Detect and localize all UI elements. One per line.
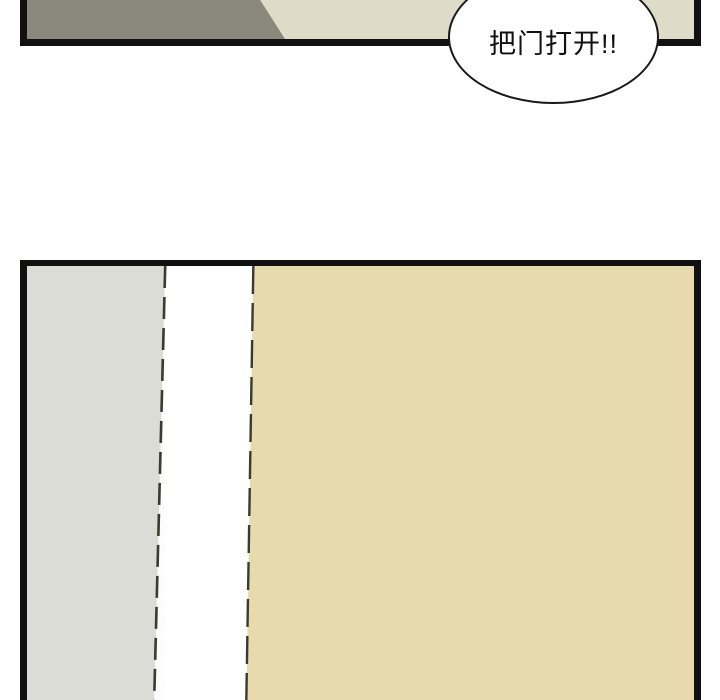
gray-wall-strip xyxy=(27,266,165,700)
bottom-panel-art xyxy=(27,266,694,700)
comic-page: 把门打开!! xyxy=(0,0,720,700)
speech-bubble-text: 把门打开!! xyxy=(489,31,618,58)
bottom-panel xyxy=(20,260,701,700)
speech-bubble: 把门打开!! xyxy=(448,0,659,104)
door-panel-beige xyxy=(246,266,694,700)
